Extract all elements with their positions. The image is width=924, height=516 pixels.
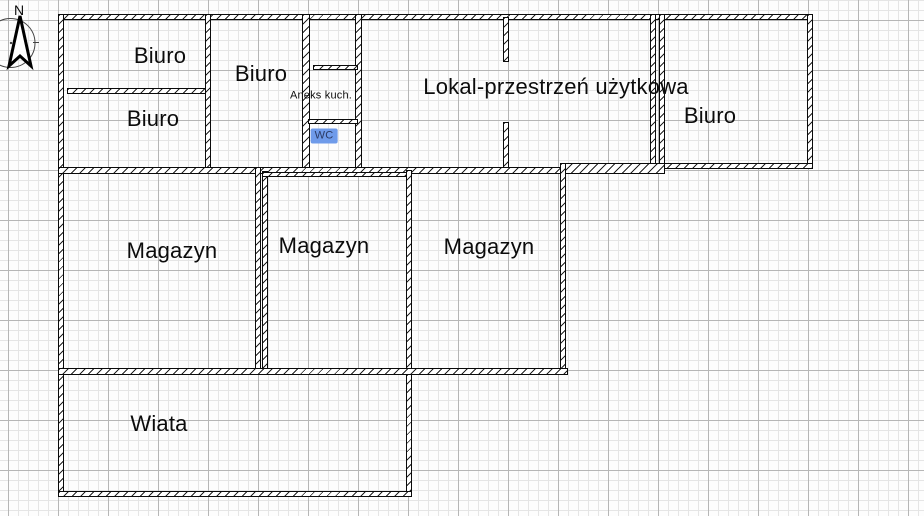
wall-lokal-stub-bottom bbox=[503, 122, 509, 172]
north-compass-icon: N bbox=[0, 0, 46, 86]
room-label-biuro-middle: Biuro bbox=[235, 63, 287, 85]
wall-magazyn2-left bbox=[262, 171, 268, 375]
room-label-magazyn-left: Magazyn bbox=[127, 240, 218, 262]
wall-right-outer bbox=[807, 14, 813, 169]
room-label-magazyn-middle: Magazyn bbox=[279, 235, 370, 257]
wall-magazyn1-right bbox=[255, 167, 261, 375]
wall-aneks-top bbox=[313, 65, 358, 70]
wall-lokal-bottom-step bbox=[562, 163, 665, 174]
room-label-biuro-right: Biuro bbox=[684, 105, 736, 127]
wall-top-outer bbox=[58, 14, 813, 20]
wall-magazyn2-right-wiata-right bbox=[406, 170, 412, 497]
room-label-wiata: Wiata bbox=[130, 413, 187, 435]
wall-band-bottom bbox=[58, 368, 568, 375]
wall-magazyn3-right bbox=[560, 163, 566, 375]
room-label-wc[interactable]: WC bbox=[311, 129, 338, 144]
wall-wiata-bottom bbox=[58, 491, 412, 497]
wall-magazyn2-top bbox=[262, 172, 412, 177]
wall-left-outer bbox=[58, 14, 64, 497]
room-label-aneks-kuchenny: Aneks kuch. bbox=[290, 91, 352, 102]
wall-biuro-divider bbox=[67, 88, 210, 94]
wall-vertical-biuro1-biuro2 bbox=[205, 14, 211, 174]
svg-text:N: N bbox=[14, 2, 24, 18]
wall-vertical-core-lokal bbox=[355, 14, 362, 174]
wall-biuro-right-bottom bbox=[653, 163, 813, 169]
wall-lokal-stub-top bbox=[503, 17, 509, 62]
room-label-magazyn-right: Magazyn bbox=[444, 236, 535, 258]
room-label-biuro-bottom-left: Biuro bbox=[127, 108, 179, 130]
room-label-lokal: Lokal-przestrzeń użytkowa bbox=[423, 76, 688, 98]
wall-wc-top bbox=[308, 119, 358, 124]
room-label-biuro-top-left: Biuro bbox=[134, 45, 186, 67]
floorplan-canvas: N Biuro Biuro Biuro Aneks kuch. WC Lokal… bbox=[0, 0, 924, 516]
